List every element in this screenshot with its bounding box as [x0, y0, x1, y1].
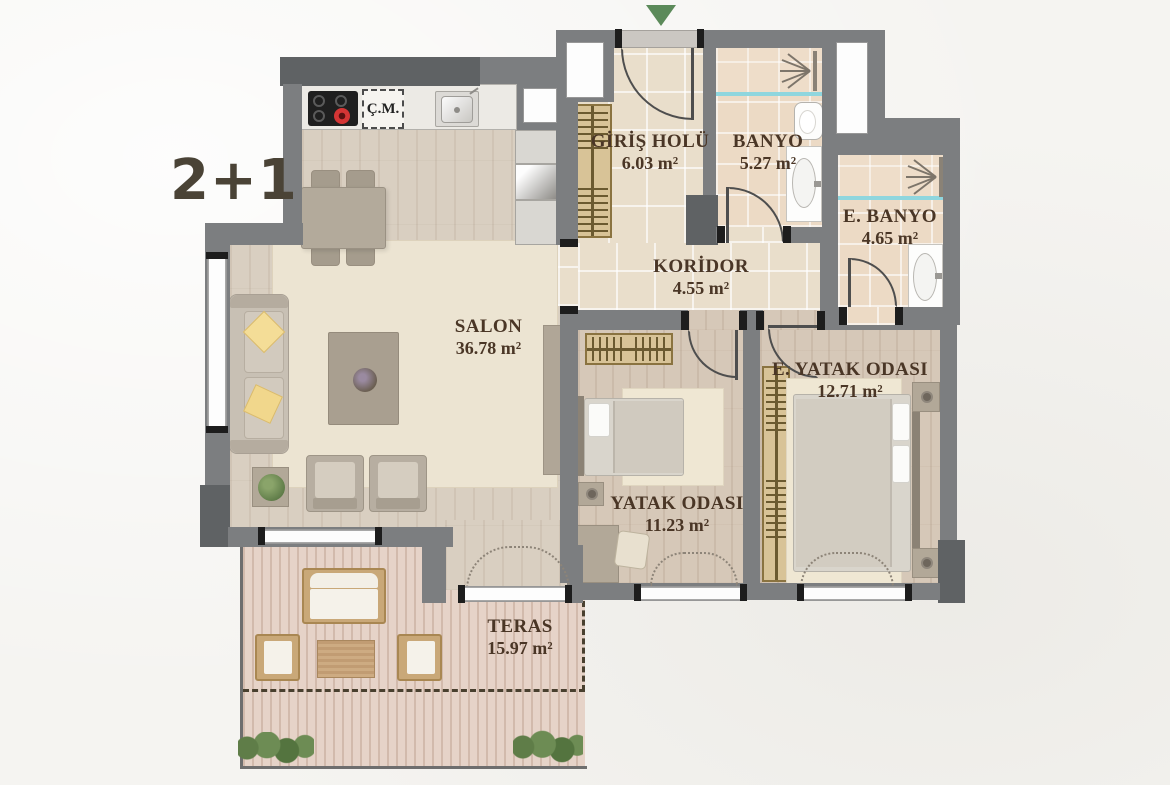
room-name: E. BANYO — [830, 206, 950, 228]
area-rug — [272, 240, 558, 488]
fridge — [515, 164, 561, 200]
room-label-e-banyo: E. BANYO 4.65 m² — [830, 206, 950, 250]
burner-active — [334, 108, 350, 124]
blanket — [796, 399, 892, 567]
door-jamb — [839, 307, 847, 325]
terrace-mat — [317, 640, 375, 678]
room-label-giris-holu: GİRİŞ HOLÜ 6.03 m² — [583, 131, 717, 175]
room-area: 11.23 m² — [597, 515, 757, 536]
door-jamb — [739, 311, 747, 330]
burner — [335, 95, 347, 107]
window — [523, 88, 557, 123]
side-table — [252, 467, 289, 507]
nightstand — [912, 548, 940, 578]
room-area: 6.03 m² — [583, 153, 717, 174]
bedroom-wardrobe — [585, 333, 673, 365]
kitchen-counter: Ç.M. — [293, 84, 517, 130]
room-name: BANYO — [708, 131, 828, 153]
bed-headboard — [577, 396, 584, 476]
knob — [921, 557, 933, 569]
sofa — [229, 294, 289, 454]
wall-segment — [940, 315, 957, 545]
window-jamb — [905, 584, 912, 601]
plant — [238, 732, 314, 764]
door-jamb — [697, 29, 704, 48]
sink-basin — [913, 253, 937, 301]
room-label-teras: TERAS 15.97 m² — [440, 616, 600, 660]
door-jamb — [560, 239, 578, 247]
terrace-chair-cushion — [264, 641, 292, 674]
window-jamb — [797, 584, 804, 601]
armchair-back — [313, 498, 357, 509]
room-name: GİRİŞ HOLÜ — [583, 131, 717, 153]
window — [640, 586, 741, 601]
wardrobe-rail — [587, 348, 671, 351]
room-name: YATAK ODASI — [597, 493, 757, 515]
bed-headboard — [912, 394, 920, 572]
door-jamb — [756, 311, 764, 330]
plant — [513, 730, 583, 764]
pillow — [892, 445, 910, 483]
window-jamb — [634, 584, 641, 601]
sofa-armrest — [230, 295, 288, 308]
double-bed — [793, 394, 911, 572]
window-jamb — [206, 252, 228, 259]
window — [836, 42, 868, 134]
room-label-salon: SALON 36.78 m² — [416, 316, 561, 360]
entrance-door-panel — [618, 30, 700, 48]
washing-machine-box: Ç.M. — [362, 89, 404, 129]
room-name: E. YATAK ODASI — [764, 359, 936, 381]
window — [207, 258, 227, 428]
room-area: 15.97 m² — [440, 638, 600, 659]
burner — [313, 110, 325, 122]
armchair — [306, 455, 364, 512]
door-jamb — [560, 306, 578, 314]
room-area: 4.55 m² — [635, 278, 767, 299]
floor-plan: Ç.M. — [0, 0, 1170, 785]
kitchen-cabinet — [515, 200, 561, 245]
wall-segment — [716, 30, 830, 48]
dining-chair — [311, 246, 340, 266]
shower-glass — [716, 92, 822, 96]
terrace-sofa-cushion — [310, 589, 378, 619]
window-jamb — [258, 527, 265, 545]
door-jamb — [681, 311, 689, 330]
terrace-chair-cushion — [407, 641, 435, 674]
entrance-arrow-icon — [646, 5, 676, 26]
plan-type-label: 2+1 — [170, 148, 298, 213]
wall-column — [686, 195, 718, 245]
window-jamb — [740, 584, 747, 601]
potted-plant — [258, 474, 285, 501]
faucet — [469, 87, 478, 94]
pillow — [892, 403, 910, 441]
sliding-door-window — [463, 586, 567, 602]
sofa-armrest — [230, 440, 288, 453]
armchair — [369, 455, 427, 512]
window-jamb — [565, 585, 572, 603]
wall-corner — [938, 540, 965, 603]
terrace-chair — [397, 634, 442, 681]
window-jamb — [206, 426, 228, 433]
sink-drain — [454, 107, 460, 113]
window — [566, 42, 604, 98]
terrace-sofa-back — [310, 573, 378, 588]
coffee-table — [328, 332, 399, 425]
terrace-chair — [255, 634, 300, 681]
wall-segment — [280, 57, 480, 86]
wall-segment — [820, 243, 837, 313]
shower-icon — [898, 156, 944, 198]
stove — [308, 91, 358, 126]
wall-segment — [422, 540, 446, 603]
room-area: 12.71 m² — [764, 381, 936, 402]
centerpiece — [353, 368, 377, 392]
armchair-cushion — [315, 462, 355, 498]
plan-type-text: 2+1 — [170, 148, 298, 213]
door-jamb — [717, 226, 725, 243]
kitchen-sink — [435, 91, 479, 127]
burner — [313, 95, 325, 107]
door-jamb — [783, 226, 791, 243]
kitchen-cabinet — [515, 130, 561, 164]
room-area: 4.65 m² — [830, 228, 950, 249]
terrace-sofa — [302, 568, 386, 624]
single-bed — [584, 398, 684, 476]
window-jamb — [375, 527, 382, 545]
blanket — [613, 401, 683, 473]
wall-segment — [480, 57, 517, 84]
opening-ensuite-door — [846, 307, 896, 325]
armchair-cushion — [378, 462, 418, 498]
pillow — [588, 403, 610, 437]
window-jamb — [458, 585, 465, 603]
door-jamb — [615, 29, 622, 48]
window — [803, 586, 906, 601]
room-name: TERAS — [440, 616, 600, 638]
faucet — [935, 273, 942, 279]
wall-segment — [743, 330, 760, 585]
room-name: SALON — [416, 316, 561, 338]
opening-bedroom-door — [688, 310, 740, 330]
shower-icon — [772, 50, 818, 92]
terrace-edge-bottom — [240, 766, 587, 769]
room-label-banyo: BANYO 5.27 m² — [708, 131, 828, 175]
terrace-dashed-boundary — [243, 689, 585, 692]
opening-salon-corridor — [558, 245, 578, 306]
dining-chair — [346, 246, 375, 266]
ensuite-vanity — [908, 244, 943, 308]
door-jamb — [895, 307, 903, 325]
dining-table — [301, 187, 386, 249]
room-label-e-yatak-odasi: E. YATAK ODASI 12.71 m² — [764, 359, 936, 403]
window — [263, 529, 377, 544]
door-jamb — [817, 311, 825, 330]
room-name: KORİDOR — [635, 256, 767, 278]
washing-machine-label: Ç.M. — [367, 101, 400, 118]
room-area: 36.78 m² — [416, 338, 561, 359]
wall-segment — [556, 102, 570, 245]
wall-segment — [200, 485, 230, 547]
room-label-yatak-odasi: YATAK ODASI 11.23 m² — [597, 493, 757, 537]
armchair-back — [376, 498, 420, 509]
room-label-koridor: KORİDOR 4.55 m² — [635, 256, 767, 300]
faucet — [814, 181, 821, 187]
room-area: 5.27 m² — [708, 153, 828, 174]
